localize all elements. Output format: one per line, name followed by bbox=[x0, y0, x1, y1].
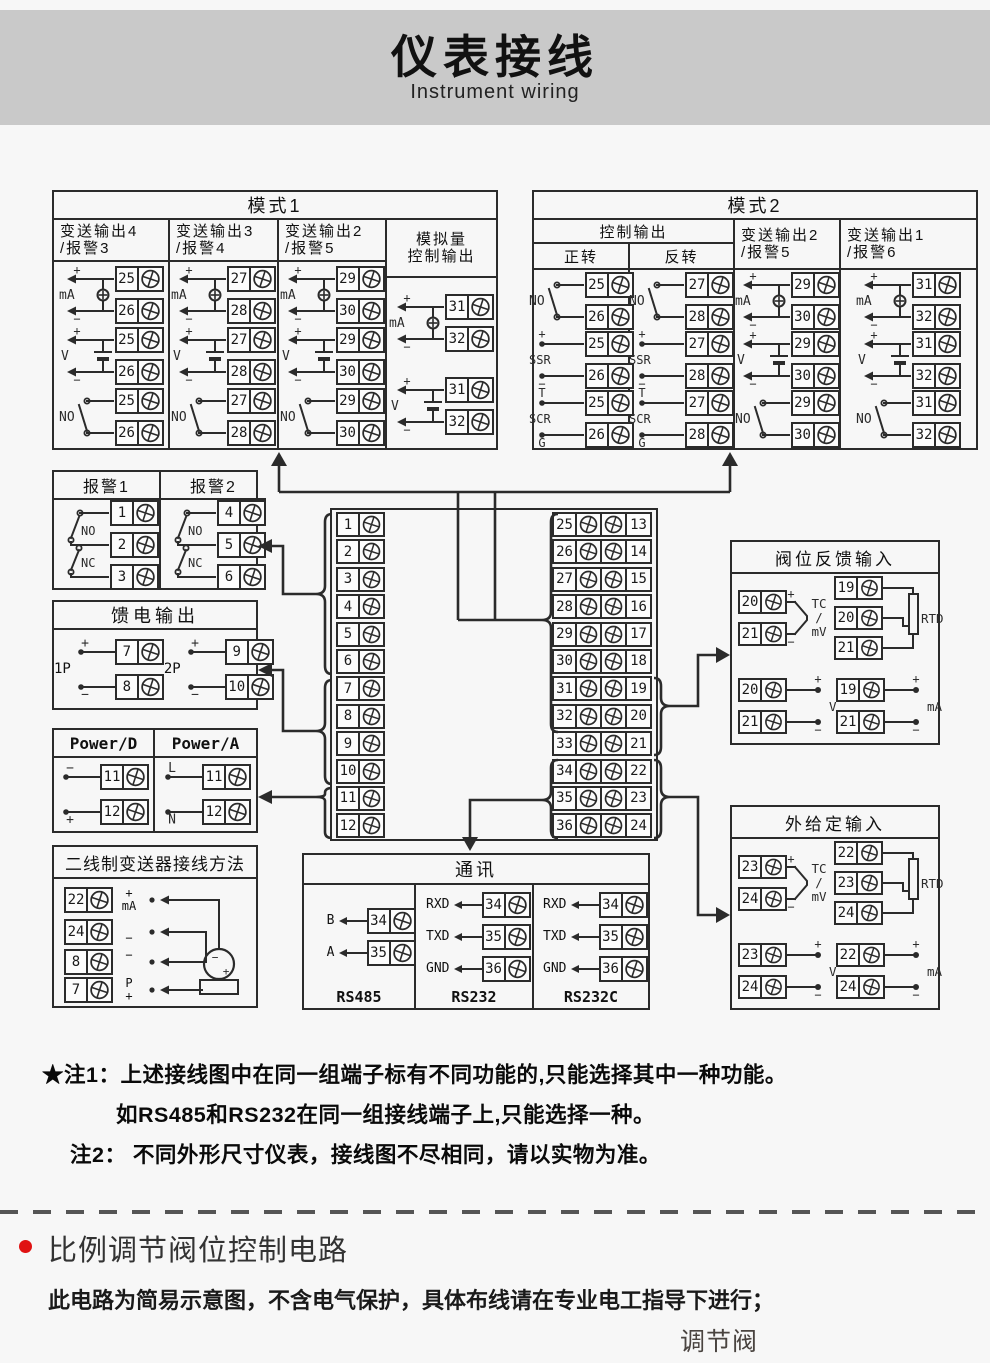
terminal-stack: 2728 bbox=[227, 388, 276, 446]
symbol-label: NO bbox=[280, 410, 296, 425]
screw-terminal-icon bbox=[709, 274, 732, 296]
wiring-diagram: NO2526 bbox=[529, 272, 634, 330]
symbol-label: V bbox=[282, 349, 290, 364]
terminal-row: 10 bbox=[336, 759, 385, 784]
terminal-screw bbox=[815, 363, 840, 389]
terminal-stack: 2728 bbox=[227, 327, 276, 385]
terminal-cell: 25 bbox=[115, 388, 164, 414]
terminal-cell: 26 bbox=[115, 420, 164, 446]
wiring-diagram: +−mA2930 bbox=[735, 272, 840, 330]
terminal-cell: 26 bbox=[585, 422, 634, 448]
terminal-number: 28 bbox=[685, 422, 709, 448]
terminal-screw bbox=[469, 294, 494, 320]
terminal-cell: 4 bbox=[336, 594, 385, 620]
terminal-stack: 192021 bbox=[834, 576, 883, 660]
terminal-screw bbox=[134, 532, 159, 558]
terminal-row: 2715 bbox=[552, 567, 652, 592]
terminal-number: 29 bbox=[791, 331, 815, 357]
terminal-stack: 3132 bbox=[912, 390, 961, 448]
terminal-cell: 19 bbox=[834, 576, 883, 600]
valve-feedback-box: 阀位反馈输入 2021+−TC/mV 192021RTD 2021+−V 192… bbox=[730, 540, 940, 745]
header-line: /报警3 bbox=[60, 240, 168, 257]
terminal-screw bbox=[858, 606, 883, 630]
terminal-row: 8 bbox=[336, 704, 385, 729]
terminal-row: 3523 bbox=[552, 786, 652, 811]
terminal-screw bbox=[469, 377, 494, 403]
screw-terminal-icon bbox=[88, 921, 111, 943]
wiring-diagram: +−mA2930 bbox=[280, 266, 385, 324]
mode2-reverse-diagrams: NO2728+−SSR2728TGSCR2728 bbox=[630, 270, 735, 450]
terminal-cell: 8 bbox=[64, 949, 113, 975]
terminal-screw bbox=[360, 731, 385, 756]
terminal-screw bbox=[762, 622, 787, 646]
terminal-cell: 24 bbox=[64, 919, 113, 945]
stub-row: −8 bbox=[73, 674, 164, 700]
terminal-number: 21 bbox=[738, 622, 762, 646]
terminal-cell: 7 bbox=[115, 639, 164, 665]
terminal-number: 12 bbox=[100, 799, 124, 825]
terminal-number: 26 bbox=[115, 298, 139, 324]
terminal-screw bbox=[815, 422, 840, 448]
symbol-label: NO bbox=[856, 412, 872, 427]
feed-title: 馈电输出 bbox=[54, 602, 256, 630]
screw-terminal-icon bbox=[360, 624, 383, 645]
terminal-cell: 34 bbox=[482, 892, 531, 918]
terminal-number: 27 bbox=[685, 272, 709, 298]
external-setpoint-title: 外给定输入 bbox=[732, 807, 938, 839]
mode1-col2-diagrams: +−mA2728+−V2728NO2728 bbox=[170, 262, 277, 450]
terminal-number: 21 bbox=[836, 710, 860, 734]
terminal-cell: 29 bbox=[791, 272, 840, 298]
terminal-stack: 123 bbox=[110, 500, 159, 590]
wiring-diagram: +−V3132 bbox=[856, 331, 961, 389]
terminal-number: 25 bbox=[115, 266, 139, 292]
terminal-cell: 32 bbox=[445, 409, 494, 435]
screw-terminal-icon bbox=[391, 942, 414, 964]
comm-signal-label: A bbox=[303, 945, 335, 960]
terminal-screw bbox=[139, 388, 164, 414]
terminal-screw bbox=[762, 710, 787, 734]
terminal-stack: 2728 bbox=[227, 266, 276, 324]
terminal-cell: 24 bbox=[836, 975, 885, 999]
terminal-cell: 23 bbox=[834, 871, 883, 895]
terminal-screw bbox=[860, 943, 885, 967]
symbol-label: − bbox=[81, 687, 89, 702]
symbol-label: TC bbox=[811, 861, 826, 876]
terminal-row: 3 bbox=[336, 567, 385, 592]
terminal-number: 23 bbox=[738, 943, 762, 967]
mode1-col2-header: 变送输出3 /报警4 bbox=[170, 220, 277, 262]
terminal-cell: 20 bbox=[738, 678, 787, 702]
terminal-screw bbox=[762, 678, 787, 702]
comm-signal-label: GND bbox=[418, 961, 450, 976]
terminal-stack: 2526 bbox=[115, 327, 164, 385]
feed-2p-diagram: 2P+9−10 bbox=[164, 639, 274, 700]
terminal-screw bbox=[88, 949, 113, 975]
comm-signal-label: TXD bbox=[535, 929, 567, 944]
terminal-screw bbox=[241, 500, 266, 526]
terminal-number: 28 bbox=[685, 363, 709, 389]
wiring-diagram: NO2728 bbox=[629, 272, 734, 330]
symbol-label: + bbox=[66, 813, 74, 828]
mode1-col-2: 变送输出3 /报警4 +−mA2728+−V2728NO2728 bbox=[170, 220, 279, 450]
header-line: 变送输出1 bbox=[847, 227, 976, 244]
terminal-cell: 8 bbox=[336, 704, 385, 730]
symbol-label: SCR bbox=[629, 412, 651, 426]
screw-terminal-icon bbox=[623, 926, 646, 948]
symbol-label: − bbox=[814, 988, 821, 1002]
wiring-diagram: NO2526 bbox=[59, 388, 164, 446]
terminal-number: 16 bbox=[627, 594, 652, 619]
terminal-number: 3 bbox=[110, 564, 134, 590]
V-symbol: +−V bbox=[59, 327, 115, 385]
power-stub-symbol: N bbox=[160, 799, 202, 825]
comm-signal-label: B bbox=[303, 913, 335, 928]
screw-terminal-icon bbox=[577, 541, 600, 562]
mode2-reverse-header: 反转 bbox=[630, 244, 735, 270]
terminal-screw bbox=[709, 272, 734, 298]
terminal-cell: 27 bbox=[685, 390, 734, 416]
symbol-label: + bbox=[870, 269, 877, 283]
terminal-cell: 8 bbox=[115, 674, 164, 700]
terminal-cell: 22 bbox=[836, 943, 885, 967]
symbol-label: − bbox=[294, 373, 301, 387]
screw-terminal-icon bbox=[762, 624, 785, 644]
terminal-cell: 26 bbox=[115, 298, 164, 324]
screw-terminal-icon bbox=[251, 268, 274, 290]
terminal-screw bbox=[139, 327, 164, 353]
arrow-left-icon bbox=[452, 899, 482, 911]
terminal-screw bbox=[815, 304, 840, 330]
terminal-number: 6 bbox=[217, 564, 241, 590]
alarm1-diagram: NONC123 bbox=[54, 500, 159, 590]
terminal-number: 24 bbox=[627, 813, 652, 838]
terminal-row: 2 bbox=[336, 539, 385, 564]
terminal-cell: 32 bbox=[445, 326, 494, 352]
symbol-label: + bbox=[73, 324, 80, 338]
terminal-number: 1 bbox=[110, 500, 134, 526]
screw-terminal-icon bbox=[815, 365, 838, 387]
terminal-screw bbox=[139, 359, 164, 385]
terminal-cell: 12 bbox=[100, 799, 149, 825]
symbol-label: mA bbox=[280, 288, 296, 303]
mode2-col4-header: 变送输出1 /报警6 bbox=[841, 220, 976, 270]
ext-sp-ma-diagram: 2224+−mA bbox=[836, 943, 943, 999]
screw-terminal-icon bbox=[360, 268, 383, 290]
terminal-cell: 35 bbox=[367, 940, 416, 966]
screw-terminal-icon bbox=[360, 422, 383, 444]
terminal-number: 20 bbox=[738, 678, 762, 702]
terminal-number: 20 bbox=[627, 704, 652, 729]
screw-terminal-icon bbox=[602, 678, 625, 699]
screw-terminal-icon bbox=[936, 392, 959, 414]
symbol-label: T bbox=[538, 386, 545, 400]
two-wire-row: 24 − bbox=[64, 919, 143, 945]
terminal-row: 3624 bbox=[552, 813, 652, 838]
terminal-number: 10 bbox=[225, 674, 249, 700]
symbol-label: / bbox=[815, 875, 823, 890]
screw-terminal-icon bbox=[241, 566, 264, 588]
terminal-number: 22 bbox=[64, 887, 88, 913]
terminal-screw bbox=[360, 567, 385, 592]
comm-rows: B34A35 bbox=[303, 885, 416, 988]
terminal-screw bbox=[391, 908, 416, 934]
screw-terminal-icon bbox=[709, 392, 732, 414]
feed-1p-diagram: 1P+7−8 bbox=[54, 639, 164, 700]
ext-sp-v-diagram: 2324+−V bbox=[738, 943, 845, 999]
terminal-number: 32 bbox=[912, 363, 936, 389]
terminal-cell: 36 bbox=[482, 956, 531, 982]
screw-terminal-icon bbox=[360, 390, 383, 412]
comm-rows: RXD34TXD35GND36 bbox=[418, 885, 531, 988]
comm-signal-label: RXD bbox=[418, 897, 450, 912]
terminal-cell: 5 bbox=[336, 622, 385, 648]
screw-terminal-icon bbox=[602, 733, 625, 754]
terminal-cell: 9 bbox=[225, 639, 274, 665]
NO-symbol: NO bbox=[856, 390, 912, 448]
symbol-label: + bbox=[912, 937, 919, 951]
terminal-number: 26 bbox=[585, 363, 609, 389]
terminal-number: 23 bbox=[834, 871, 858, 895]
two-wire-labels: P+ bbox=[115, 977, 143, 1003]
symbol-label: mA bbox=[927, 699, 943, 714]
terminal-number: 35 bbox=[482, 924, 506, 950]
screw-terminal-icon bbox=[860, 712, 883, 732]
screw-terminal-icon bbox=[251, 390, 274, 412]
symbol-label: NO bbox=[529, 294, 545, 309]
terminal-screw bbox=[249, 639, 274, 665]
terminal-screw bbox=[762, 975, 787, 999]
screw-terminal-icon bbox=[762, 857, 785, 877]
terminal-cell: 23 bbox=[738, 855, 787, 879]
terminal-stack: 2526 bbox=[585, 331, 634, 389]
screw-terminal-icon bbox=[360, 815, 383, 836]
terminal-cell: 31 bbox=[912, 390, 961, 416]
valve-fb-v-diagram: 2021+−V bbox=[738, 678, 845, 734]
terminal-screw bbox=[251, 298, 276, 324]
label-bottom bbox=[125, 962, 132, 975]
symbol-label: mV bbox=[811, 889, 827, 904]
terminal-screw bbox=[602, 813, 627, 838]
terminal-cell: 29 bbox=[791, 390, 840, 416]
terminal-cell: 1 bbox=[336, 512, 385, 538]
terminal-screw bbox=[139, 266, 164, 292]
terminal-number: 34 bbox=[482, 892, 506, 918]
terminal-screw bbox=[762, 943, 787, 967]
screw-terminal-icon bbox=[360, 651, 383, 672]
terminal-screw bbox=[602, 512, 627, 537]
terminal-cell: 30 bbox=[336, 298, 385, 324]
screw-terminal-icon bbox=[577, 706, 600, 727]
terminal-screw bbox=[936, 422, 961, 448]
terminal-number: 9 bbox=[336, 731, 360, 756]
screw-terminal-icon bbox=[360, 596, 383, 617]
terminal-screw bbox=[577, 539, 602, 564]
terminal-screw bbox=[360, 622, 385, 647]
comm-standard-label: RS485 bbox=[336, 988, 381, 1010]
symbol-label: − bbox=[912, 988, 919, 1002]
terminal-number: 13 bbox=[627, 512, 652, 537]
screw-terminal-icon bbox=[241, 534, 264, 556]
screw-terminal-icon bbox=[577, 651, 600, 672]
symbol-label: NC bbox=[81, 556, 95, 570]
power-stub-symbol: + bbox=[73, 639, 115, 665]
terminal-number: 31 bbox=[552, 676, 577, 701]
terminal-cell: 25 bbox=[115, 327, 164, 353]
terminal-screw bbox=[623, 956, 648, 982]
symbol-label: − bbox=[191, 687, 199, 702]
screw-terminal-icon bbox=[577, 761, 600, 782]
terminal-cell: 27 bbox=[227, 266, 276, 292]
terminal-screw bbox=[602, 759, 627, 784]
screw-terminal-icon bbox=[360, 514, 383, 535]
screw-terminal-icon bbox=[506, 894, 529, 916]
terminal-screw bbox=[858, 576, 883, 600]
terminal-screw bbox=[241, 564, 266, 590]
section-description: 此电路为简易示意图，不含电气保护，具体布线请在专业电工指导下进行； bbox=[48, 1283, 774, 1315]
terminal-screw bbox=[360, 649, 385, 674]
screw-terminal-icon bbox=[709, 306, 732, 328]
terminal-screw bbox=[134, 564, 159, 590]
terminal-screw bbox=[602, 567, 627, 592]
symbol-label: + bbox=[749, 328, 756, 342]
screw-terminal-icon bbox=[602, 514, 625, 535]
bullet-icon bbox=[19, 1240, 32, 1253]
symbol-label: NO bbox=[81, 524, 95, 538]
V-symbol: +−V bbox=[735, 331, 791, 389]
terminal-screw bbox=[360, 786, 385, 811]
terminal-number: 30 bbox=[791, 304, 815, 330]
screw-terminal-icon bbox=[602, 569, 625, 590]
mode1-col3-header: 变送输出2 /报警5 bbox=[279, 220, 385, 262]
symbol-label: − bbox=[787, 635, 794, 649]
terminal-cell: 21 bbox=[836, 710, 885, 734]
power-stub-symbol: − bbox=[73, 674, 115, 700]
comm-row: B34 bbox=[303, 908, 416, 934]
terminal-screw bbox=[577, 649, 602, 674]
mA-symbol: +−mA bbox=[856, 272, 912, 330]
terminal-screw bbox=[602, 676, 627, 701]
screw-terminal-icon bbox=[360, 569, 383, 590]
terminal-number: 8 bbox=[115, 674, 139, 700]
symbol-label: − bbox=[403, 423, 410, 437]
rs232-group: RXD34TXD35GND36RS232 bbox=[416, 885, 534, 1010]
terminal-row: 11 bbox=[336, 786, 385, 811]
comm-row: GND36 bbox=[535, 956, 648, 982]
rtd-symbol: RTD bbox=[883, 841, 939, 925]
symbol-label: + bbox=[191, 636, 199, 651]
terminal-number: 36 bbox=[552, 813, 577, 838]
screw-terminal-icon bbox=[134, 566, 157, 588]
terminal-number: 22 bbox=[834, 841, 858, 865]
terminal-cell: 12 bbox=[336, 813, 385, 839]
terminal-number: 2 bbox=[336, 539, 360, 564]
arrow-up-mode2-icon bbox=[722, 452, 738, 466]
symbol-label: V bbox=[173, 349, 181, 364]
symbol-label: + bbox=[294, 263, 301, 277]
terminal-screw bbox=[251, 327, 276, 353]
comm-box: 通讯 B34A35RS485 RXD34TXD35GND36RS232 RXD3… bbox=[302, 853, 650, 1010]
terminal-cell: 7 bbox=[336, 676, 385, 702]
terminal-cell: 21 bbox=[738, 622, 787, 646]
terminal-cell: 28 bbox=[227, 420, 276, 446]
terminal-screw bbox=[860, 975, 885, 999]
symbol-label: V bbox=[737, 353, 745, 368]
terminal-number: 32 bbox=[445, 326, 469, 352]
header-line: 控制输出 bbox=[407, 248, 475, 265]
terminal-stack: 2526 bbox=[585, 272, 634, 330]
screw-terminal-icon bbox=[577, 815, 600, 836]
screw-terminal-icon bbox=[251, 329, 274, 351]
symbol-label: RTD bbox=[921, 876, 944, 891]
terminal-screw bbox=[860, 710, 885, 734]
terminal-cell: 20 bbox=[738, 590, 787, 614]
terminal-cell: 11 bbox=[336, 786, 385, 812]
mode2-forward-diagrams: NO2526+−SSR2526TGSCR2526 bbox=[534, 270, 630, 450]
terminal-number: 29 bbox=[552, 622, 577, 647]
wiring-diagram: +−V2930 bbox=[280, 327, 385, 385]
two-wire-row: 8− bbox=[64, 949, 143, 975]
terminal-screw bbox=[577, 594, 602, 619]
stub-row: N12 bbox=[160, 799, 251, 825]
terminal-stack: 2930 bbox=[336, 327, 385, 385]
terminal-number: 5 bbox=[217, 532, 241, 558]
screw-terminal-icon bbox=[577, 514, 600, 535]
SSR-symbol: +−SSR bbox=[529, 331, 585, 389]
NO-symbol: NO bbox=[59, 388, 115, 446]
terminal-number: 30 bbox=[791, 422, 815, 448]
screw-terminal-icon bbox=[88, 979, 111, 1001]
wire-to-feed bbox=[272, 670, 316, 731]
screw-terminal-icon bbox=[469, 411, 492, 433]
NO-symbol: NO bbox=[529, 272, 585, 330]
terminal-stack: 3132 bbox=[445, 294, 494, 352]
symbol-label: / bbox=[815, 610, 823, 625]
screw-terminal-icon bbox=[936, 333, 959, 355]
terminal-screw bbox=[709, 331, 734, 357]
symbol-label: mA bbox=[171, 288, 187, 303]
terminal-screw bbox=[360, 327, 385, 353]
symbol-label: − bbox=[787, 900, 794, 914]
terminal-number: 31 bbox=[912, 331, 936, 357]
screw-terminal-icon bbox=[815, 392, 838, 414]
terminal-screw bbox=[506, 892, 531, 918]
terminal-cell: 26 bbox=[585, 304, 634, 330]
label-bottom: + bbox=[125, 990, 132, 1003]
terminal-screw bbox=[360, 813, 385, 838]
terminal-screw bbox=[858, 636, 883, 660]
mode1-col1-diagrams: +−mA2526+−V2526NO2526 bbox=[54, 262, 168, 450]
terminal-cell: 3 bbox=[336, 567, 385, 593]
NO-symbol: NO bbox=[735, 390, 791, 448]
NO-symbol: NO bbox=[171, 388, 227, 446]
terminal-number: 27 bbox=[552, 567, 577, 592]
header-line: 变送输出4 bbox=[60, 223, 168, 240]
terminal-number: 18 bbox=[627, 649, 652, 674]
header-line: /报警6 bbox=[847, 244, 976, 261]
wire-to-alarm bbox=[272, 546, 316, 594]
terminal-screw bbox=[251, 388, 276, 414]
terminal-number: 27 bbox=[227, 388, 251, 414]
terminal-screw bbox=[360, 759, 385, 784]
SCR-symbol: TGSCR bbox=[629, 390, 685, 448]
symbol-label: SSR bbox=[629, 353, 651, 367]
comm-standard-label: RS232 bbox=[451, 988, 496, 1010]
mode1-col4-diagrams: +−mA3132+−V3132 bbox=[387, 278, 496, 450]
terminal-number: 12 bbox=[202, 799, 226, 825]
terminal-number: 32 bbox=[552, 704, 577, 729]
screw-terminal-icon bbox=[762, 592, 785, 612]
